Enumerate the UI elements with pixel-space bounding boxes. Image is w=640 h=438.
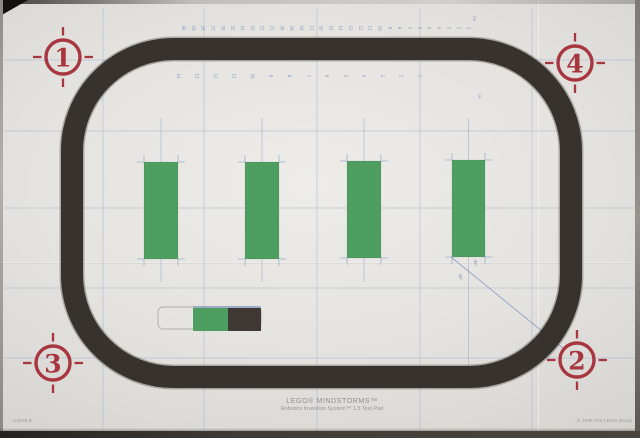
corner-marker-number: 3 [44,350,61,379]
test-pad-photo: 3029282726252423222120191817161514131211… [0,0,640,438]
ruler-inner-number: 8 [287,75,292,78]
ruler-top-number: 2 [456,27,461,30]
green-bar [245,162,279,259]
ruler-top-number: 18 [299,25,304,31]
ruler-inner-unit: in [477,93,482,99]
ruler-top-number: 14 [338,25,343,31]
ruler-inner-number: 3 [380,75,385,78]
green-bar-group [445,118,492,372]
ruler-top-number: 30 [181,25,186,31]
ruler-top-number: 20 [279,25,284,31]
green-bar [452,160,485,257]
corner-marker-1: 1 [33,27,93,87]
ruler-inner-number: 9 [269,75,274,78]
ruler-top-number: 5 [427,27,432,30]
start-box-dark-block [228,308,261,331]
ruler-top-number: 7 [407,27,412,30]
ruler-top-number: 22 [260,25,265,31]
green-bar-group [238,118,286,282]
angle-label: 45° [458,274,463,281]
photo-edge-bottom [0,431,640,438]
ruler-top-number: 27 [210,25,215,31]
ruler-top-number: 9 [387,27,392,30]
ruler-top-number: 17 [309,25,314,31]
angle-label: 45° [473,260,478,267]
pad-title: LEGO® MINDSTORMS™ Robotics Invention Sys… [212,398,452,413]
ruler-top-number: 8 [397,27,402,30]
ruler-inner: 1413121110987654321in [176,73,482,99]
corner-marker-number: 1 [54,44,71,73]
ruler-top-number: 10 [378,25,383,31]
green-bar [347,161,381,258]
ruler-top-number: 3 [446,27,451,30]
ruler-top-number: 6 [417,27,422,30]
ruler-inner-number: 11 [232,73,237,79]
ruler-top-number: 24 [240,25,245,31]
photo-edge-top [0,0,640,4]
ruler-top-number: 15 [328,25,333,31]
pad-title-line2: Robotics Invention System™ 1.5 Test Pad [212,406,452,413]
ruler-inner-number: 4 [361,75,366,78]
ruler-top-number: 26 [220,25,225,31]
ruler-inner-number: 7 [306,75,311,78]
ruler-inner-number: 12 [213,73,218,79]
ruler-top: 3029282726252423222120191817161514131211… [181,15,477,31]
ruler-inner-number: 2 [398,75,403,78]
ruler-top-number: 13 [348,25,353,31]
corner-marker-number: 2 [568,347,585,376]
ruler-top-number: 21 [269,25,274,31]
ruler-inner-number: 14 [176,73,181,79]
ruler-top-number: 29 [191,25,196,31]
pad-graphics: 3029282726252423222120191817161514131211… [0,0,640,438]
ruler-top-number: 16 [319,25,324,31]
footer-copyright: © 1998 The LEGO Group [577,418,632,423]
ruler-inner-number: 1 [417,75,422,78]
corner-marker-number: 4 [566,50,583,79]
ruler-top-number: 23 [250,25,255,31]
ruler-top-unit: cm [472,15,477,21]
photo-edge-right [635,0,640,438]
start-box-green-block [193,308,228,331]
corner-marker-3: 3 [23,333,83,393]
ruler-top-number: 4 [437,27,442,30]
ruler-top-number: 25 [230,25,235,31]
ruler-top-number: 11 [368,25,373,31]
ruler-top-number: 1 [466,27,471,30]
green-bar-group [340,118,388,282]
start-box [158,307,261,331]
ruler-top-number: 19 [289,25,294,31]
photo-edge-left [0,0,3,438]
pad-title-line1: LEGO® MINDSTORMS™ [212,398,452,406]
footer-part-code: C1578 B [13,418,32,423]
green-bar-group [137,118,185,282]
ruler-inner-number: 5 [343,75,348,78]
ruler-inner-number: 13 [195,73,200,79]
ruler-inner-number: 10 [250,73,255,79]
ruler-top-number: 28 [201,25,206,31]
ruler-top-number: 12 [358,25,363,31]
ruler-inner-number: 6 [324,75,329,78]
green-bar [144,162,178,259]
